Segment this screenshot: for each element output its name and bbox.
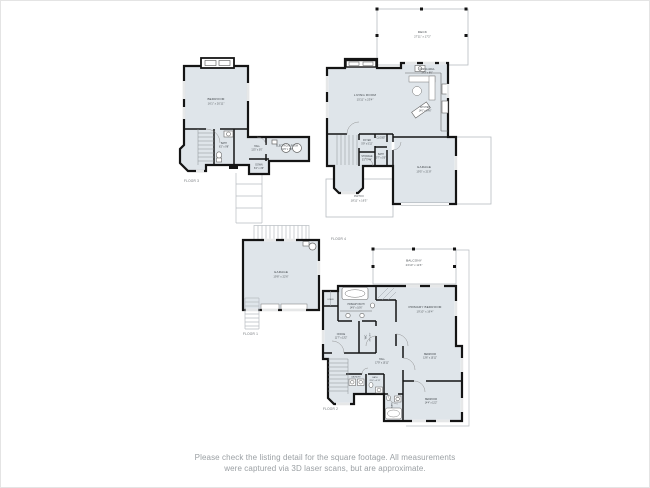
room-label-storage: STORAGE — [361, 155, 373, 158]
driveway-outline — [456, 137, 491, 204]
room-label-office: OFFICE — [337, 334, 346, 336]
caption-line-2: were captured via 3D laser scans, but ar… — [1, 463, 649, 474]
room-dims-dining: 14'3" x 8'6" — [421, 73, 433, 75]
room-dims-electrical: 12'9" x 7'6" — [281, 149, 293, 151]
room-label-wic: WIC — [366, 334, 368, 339]
room-label-primary-bath: PRIMARY BATH — [348, 303, 365, 306]
fireplace-chimney — [346, 61, 376, 68]
room-dims-wic: 4'6" x 9'9" — [370, 332, 372, 341]
room-label-closet: CLOSET — [376, 138, 386, 140]
room-dims-foyer: 5'9" x 5'11" — [361, 144, 372, 146]
caption-line-1: Please check the listing detail for the … — [1, 452, 649, 463]
room-label-hall: HALL — [379, 358, 385, 361]
room-dims-hall: 11'5" x 3'0" — [251, 150, 262, 152]
room-dims-primary-bedroom: 19'10" x 16'4" — [417, 310, 434, 314]
room-label-living: LIVING ROOM — [354, 93, 377, 97]
room-dims-deck: 27'11" x 17'2" — [414, 35, 431, 39]
room-label-hall: HALL — [254, 145, 260, 148]
floor-plan-1: GARAGE 19'8" x 22'6" FLOOR 1 — [234, 221, 324, 339]
floor1-label: FLOOR 1 — [243, 332, 258, 336]
room-label-laundry: LAUNDRY — [351, 376, 361, 379]
stairwell-down-outline — [236, 173, 262, 223]
entry-stairs-outline — [254, 226, 309, 240]
room-label-garage: GARAGE — [274, 270, 288, 274]
room-dims-office: 11'7" x 13'2" — [335, 338, 348, 340]
room-dims-storage: 5'2" x 4'4" — [362, 160, 372, 162]
room-label-balcony: BALCONY — [406, 259, 422, 263]
room-dims-bedroom2: 13'6" x 10'11" — [423, 358, 437, 360]
floor-plan-2: BALCONY 23'10" x 11'6" PRIMARY BATH 14'9… — [314, 246, 479, 438]
room-label-dining: DINING AREA — [420, 68, 435, 71]
room-label-down: DOWN — [255, 165, 263, 167]
garage-door-panels — [261, 304, 307, 309]
floor3-label: FLOOR 3 — [184, 179, 199, 183]
room-label-bedroom2: BEDROOM — [424, 354, 436, 356]
room-dims-balcony: 23'10" x 11'6" — [406, 263, 423, 267]
room-label-kitchen: KITCHEN — [420, 107, 430, 109]
room-label-bedroom: BEDROOM — [207, 97, 224, 101]
room-label-patio: PATIO — [354, 194, 364, 198]
floor-plan-sheet: BEDROOM 16'1" x 20'11" BATH 6'2" x 9'8" … — [0, 0, 650, 488]
room-label-bath: BATH — [221, 142, 227, 145]
room-dims-patio: 18'11" x 16'3" — [351, 199, 368, 203]
room-dims-bedroom3: 14'4" x 11'2" — [425, 403, 438, 405]
floor4-label: FLOOR 4 — [331, 237, 346, 241]
room-dims-hall: 17'9" x 10'11" — [375, 363, 389, 365]
disclaimer-caption: Please check the listing detail for the … — [1, 452, 649, 474]
room-dims-bath: 8'10" x 4'11" — [370, 380, 381, 382]
floor-plan-4: DECK 27'11" x 17'2" DINING AREA 14'3" x … — [319, 6, 494, 246]
room-dims-down: 6'4" x 4'6" — [254, 168, 264, 170]
room-label-deck: DECK — [418, 30, 428, 34]
room-label-foyer: FOYER — [363, 140, 371, 142]
floor3-outer-walls — [180, 66, 309, 174]
floor-plan-3: BEDROOM 16'1" x 20'11" BATH 6'2" x 9'8" … — [176, 53, 316, 233]
room-label-bedroom3: BEDROOM — [425, 399, 437, 401]
room-dims-bedroom: 16'1" x 20'11" — [208, 102, 225, 106]
room-dims-garage: 19'8" x 22'6" — [273, 275, 288, 279]
room-dims-primary-bath: 14'9" x 10'6" — [350, 308, 363, 310]
room-dims-bath: 5'7" x 5'0" — [376, 158, 386, 160]
fireplace-chimney — [201, 58, 234, 68]
room-label-bath2: BATH — [391, 402, 394, 408]
room-label-primary-bedroom: PRIMARY BEDROOM — [408, 305, 441, 309]
room-label-linen: LINEN — [328, 299, 334, 301]
room-label-electrical: ELECTRICAL ROOM — [276, 145, 298, 148]
garage-door — [401, 203, 449, 205]
room-dims-bath: 6'2" x 9'8" — [219, 147, 229, 149]
room-dims-garage: 19'5" x 21'8" — [416, 170, 431, 174]
room-dims-living: 15'11" x 23'4" — [357, 98, 374, 102]
room-label-bath: BATH — [378, 153, 384, 156]
room-label-bath: BATH — [372, 376, 378, 379]
room-label-garage: GARAGE — [417, 165, 431, 169]
room-dims-kitchen: 14'0" x 14'6" — [419, 111, 432, 113]
floor2-label: FLOOR 2 — [323, 407, 338, 411]
